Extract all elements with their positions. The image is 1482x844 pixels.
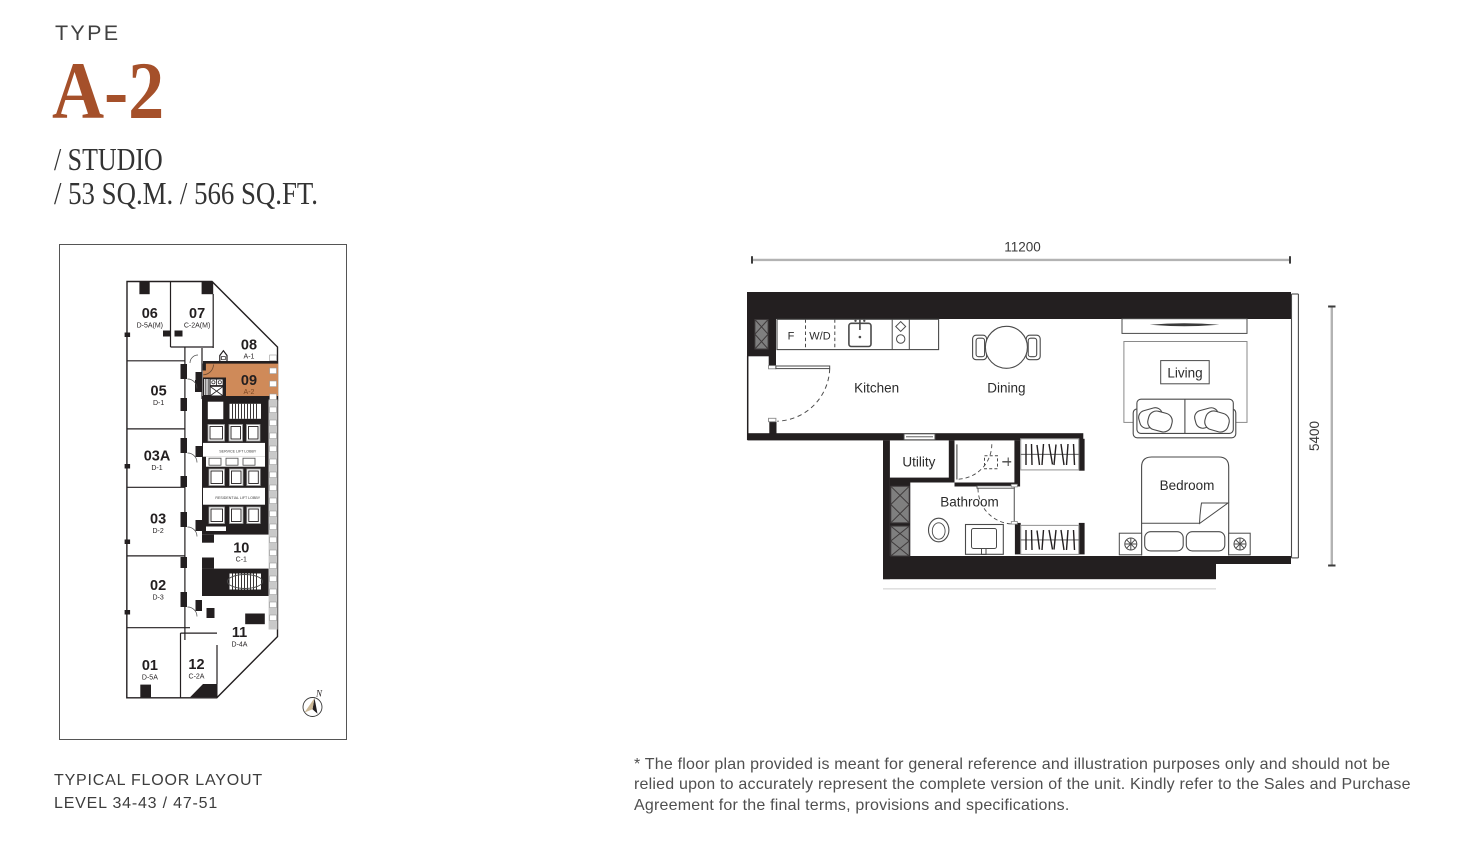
svg-text:D-4A: D-4A <box>232 642 248 649</box>
svg-text:11: 11 <box>232 625 247 641</box>
svg-text:D-5A(M): D-5A(M) <box>137 322 163 329</box>
svg-text:D-1: D-1 <box>151 465 162 472</box>
svg-text:Utility: Utility <box>902 455 935 470</box>
svg-text:03A: 03A <box>144 449 171 465</box>
svg-text:C-2A(M): C-2A(M) <box>184 322 210 329</box>
svg-text:D-1: D-1 <box>153 400 164 407</box>
svg-text:03: 03 <box>150 511 166 527</box>
svg-text:Bedroom: Bedroom <box>1160 478 1215 493</box>
svg-text:Bathroom: Bathroom <box>940 495 999 510</box>
svg-text:Living: Living <box>1167 366 1202 381</box>
svg-text:A-1: A-1 <box>244 354 255 361</box>
svg-text:A-2: A-2 <box>244 389 255 396</box>
svg-text:C-1: C-1 <box>236 557 247 564</box>
svg-text:08: 08 <box>241 338 257 354</box>
svg-text:05: 05 <box>151 384 167 400</box>
svg-text:N: N <box>315 689 323 699</box>
svg-text:06: 06 <box>142 306 158 322</box>
svg-text:09: 09 <box>241 373 257 389</box>
svg-text:C-2A: C-2A <box>189 674 205 681</box>
svg-text:5400: 5400 <box>1307 421 1322 451</box>
svg-text:SERVICE LIFT LOBBY: SERVICE LIFT LOBBY <box>219 449 257 453</box>
svg-text:12: 12 <box>188 657 204 673</box>
svg-text:11200: 11200 <box>1004 240 1041 255</box>
svg-text:01: 01 <box>142 658 158 674</box>
svg-text:D-3: D-3 <box>152 595 163 602</box>
svg-text:D-2: D-2 <box>152 528 163 535</box>
svg-text:RESIDENTIAL LIFT LOBBY: RESIDENTIAL LIFT LOBBY <box>215 496 260 500</box>
svg-text:02: 02 <box>150 578 166 594</box>
svg-text:07: 07 <box>189 306 205 322</box>
svg-text:D-5A: D-5A <box>142 674 158 681</box>
svg-text:Kitchen: Kitchen <box>854 381 899 396</box>
svg-text:W/D: W/D <box>809 331 830 343</box>
svg-text:F: F <box>788 331 795 343</box>
svg-text:10: 10 <box>233 541 249 557</box>
svg-text:Dining: Dining <box>987 381 1025 396</box>
